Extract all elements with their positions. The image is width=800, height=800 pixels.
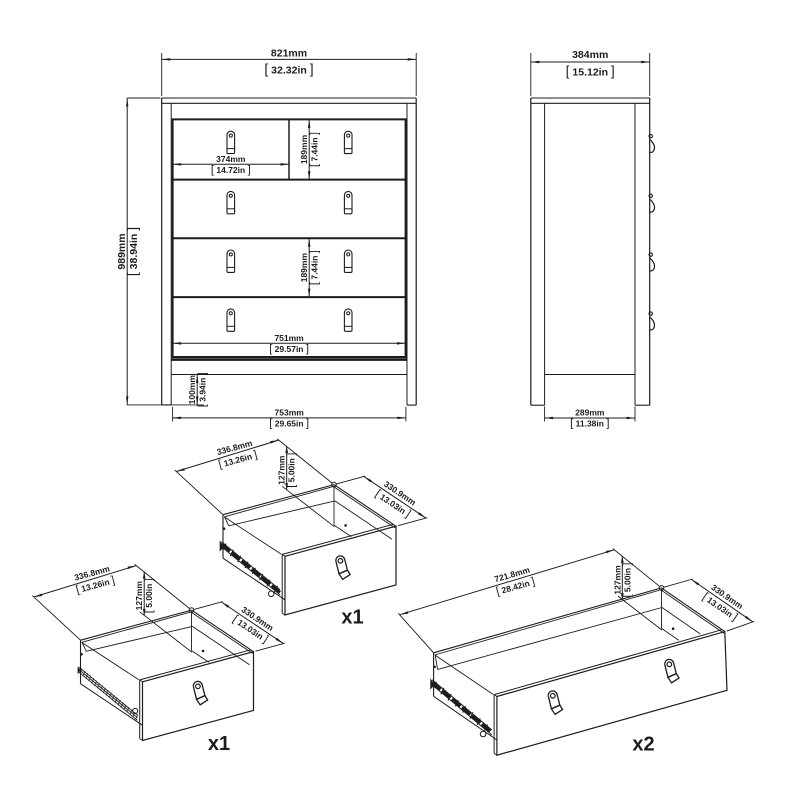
svg-text:x2: x2 bbox=[632, 734, 654, 756]
svg-text:[ 5.00in ]: [ 5.00in ] bbox=[143, 578, 155, 613]
svg-text:127mm: 127mm bbox=[277, 455, 287, 485]
svg-text:[ 7.44in ]: [ 7.44in ] bbox=[308, 250, 320, 285]
svg-text:x1: x1 bbox=[341, 607, 363, 629]
svg-text:x1: x1 bbox=[208, 733, 230, 755]
svg-text:[ 7.44in ]: [ 7.44in ] bbox=[308, 132, 320, 167]
svg-text:[ 5.00in ]: [ 5.00in ] bbox=[621, 562, 633, 597]
svg-text:374mm: 374mm bbox=[216, 154, 246, 164]
svg-text:[ 29.65in ]: [ 29.65in ] bbox=[269, 417, 309, 429]
svg-text:384mm: 384mm bbox=[572, 49, 608, 61]
svg-text:189mm: 189mm bbox=[299, 134, 309, 164]
svg-text:189mm: 189mm bbox=[299, 253, 309, 283]
svg-text:[ 14.72in ]: [ 14.72in ] bbox=[211, 164, 251, 176]
svg-text:[ 11.38in ]: [ 11.38in ] bbox=[570, 418, 609, 430]
svg-text:289mm: 289mm bbox=[575, 408, 605, 418]
svg-text:753mm: 753mm bbox=[275, 407, 305, 417]
svg-text:127mm: 127mm bbox=[612, 565, 622, 595]
svg-text:100mm: 100mm bbox=[187, 375, 197, 405]
svg-text:[ 29.57in ]: [ 29.57in ] bbox=[269, 343, 309, 355]
svg-text:[ 5.00in ]: [ 5.00in ] bbox=[286, 453, 298, 488]
svg-text:127mm: 127mm bbox=[134, 581, 144, 611]
svg-text:[ 3.94in ]: [ 3.94in ] bbox=[196, 372, 208, 407]
svg-text:821mm: 821mm bbox=[271, 48, 307, 60]
svg-text:751mm: 751mm bbox=[274, 333, 304, 343]
svg-text:989mm: 989mm bbox=[116, 233, 128, 269]
